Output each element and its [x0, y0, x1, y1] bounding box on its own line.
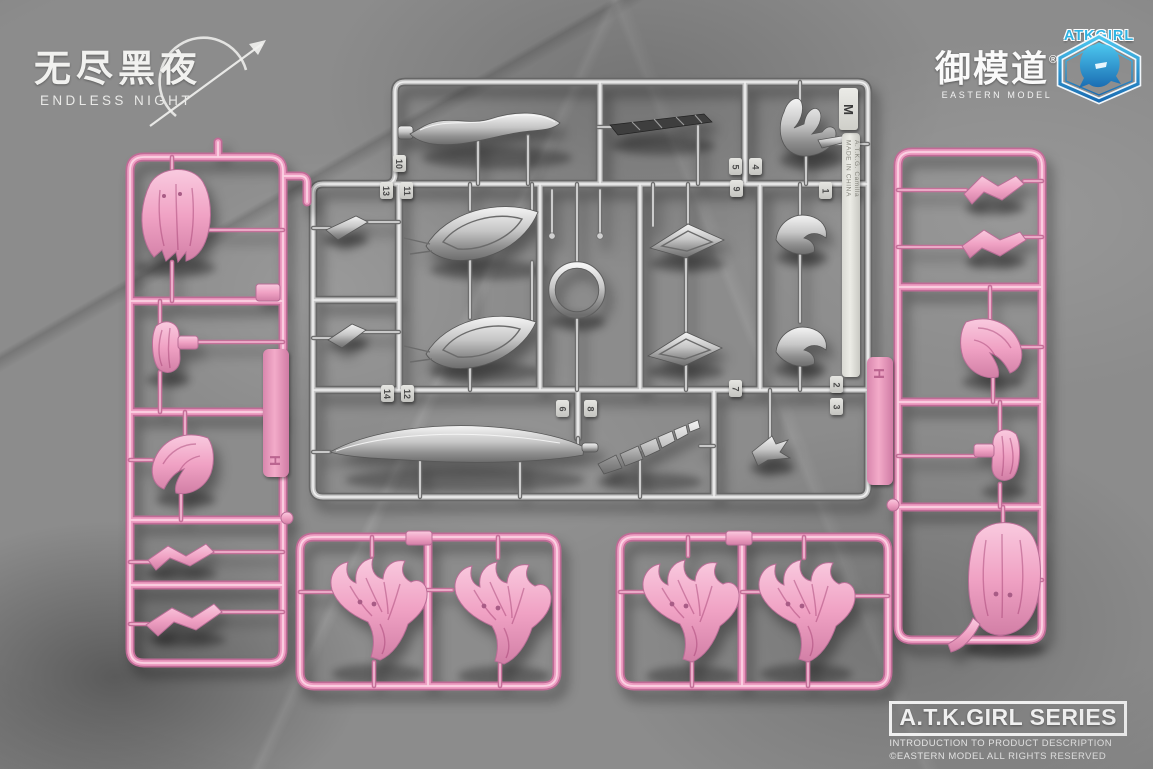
- part-pincer-upper: [776, 215, 826, 254]
- part-back-hair: [142, 169, 211, 262]
- part-front-fringe: [152, 435, 213, 494]
- part-diamond-plate-lower: [648, 332, 722, 366]
- sprue-knob: [281, 512, 293, 524]
- silver-sprue-m: [313, 82, 868, 497]
- part-number-tag: 5: [729, 158, 742, 175]
- part-number-tag: 6: [556, 400, 569, 417]
- part-side-hair-bundle-right: [974, 430, 1019, 481]
- footer-line-1: INTRODUCTION TO PRODUCT DESCRIPTION: [889, 738, 1127, 749]
- endless-night-title-cn: 无尽黑夜: [34, 38, 202, 92]
- part-hair-spike-a: [148, 544, 214, 570]
- part-number-tag: 10: [393, 155, 406, 172]
- atkgirl-badge: ATKGIRL: [1054, 33, 1144, 44]
- part-hair-spike-b: [146, 604, 222, 636]
- footer-series-block: A.T.K.GIRL SERIES INTRODUCTION TO PRODUC…: [889, 701, 1127, 762]
- part-segmented-whip: [598, 420, 700, 474]
- gate-tab: [406, 531, 432, 545]
- eastern-model-logo: 御模道® EASTERN MODEL: [924, 40, 1070, 100]
- eastern-model-name-en: EASTERN MODEL: [924, 90, 1070, 100]
- part-side-hair-bundle: [153, 322, 198, 373]
- product-photo-stage: M A.T.K.G. Camilla MADE IN CHINA H H 10 …: [0, 0, 1153, 769]
- part-number-tag: 11: [400, 182, 413, 199]
- part-number-tag: 3: [830, 398, 843, 415]
- part-number-tag: 1: [819, 182, 832, 199]
- eastern-model-name-cn: 御模道®: [924, 40, 1070, 92]
- part-greatsword: [330, 426, 598, 463]
- part-pincer-lower: [776, 327, 826, 366]
- runner-code-tag-h-left: H: [263, 349, 289, 477]
- part-hair-spike-c: [964, 176, 1024, 204]
- part-number-tag: 13: [380, 182, 393, 199]
- part-ornate-wing-lower: [404, 316, 536, 368]
- endless-night-logo: 无尽黑夜 ENDLESS NIGHT: [34, 38, 202, 108]
- part-number-tag: 14: [381, 385, 394, 402]
- part-number-tag: 4: [749, 158, 762, 175]
- part-front-fringe-right: [961, 319, 1022, 378]
- part-ring: [552, 265, 602, 315]
- footer-line-2: ©EASTERN MODEL ALL RIGHTS RESERVED: [889, 751, 1127, 762]
- part-kris-dagger: [398, 113, 560, 145]
- part-ornate-wing-upper: [404, 207, 538, 261]
- part-claw-hand: [780, 98, 846, 156]
- series-title: A.T.K.GIRL SERIES: [889, 701, 1127, 736]
- part-big-back-hair: [948, 523, 1040, 652]
- gate-tab: [256, 284, 280, 301]
- part-number-tag: 7: [729, 380, 742, 397]
- part-number-tag: 9: [730, 180, 743, 197]
- part-diamond-plate-upper: [650, 224, 724, 258]
- gate-tab: [726, 531, 752, 545]
- runner-info-label: A.T.K.G. Camilla MADE IN CHINA: [842, 133, 860, 377]
- endless-night-subtitle-en: ENDLESS NIGHT: [40, 93, 202, 108]
- anime-girl-head-hexagon-icon: [1054, 33, 1144, 105]
- part-hair-spike-d: [962, 230, 1026, 258]
- runner-code-tag-h-right: H: [867, 357, 893, 485]
- part-number-tag: 8: [584, 400, 597, 417]
- part-number-tag: 2: [830, 376, 843, 393]
- part-number-tag: 12: [401, 385, 414, 402]
- sprue-knob: [887, 499, 899, 511]
- runner-code-tag-m: M: [839, 88, 858, 130]
